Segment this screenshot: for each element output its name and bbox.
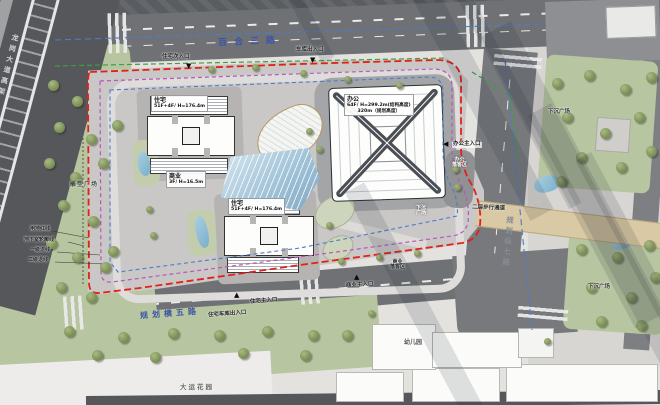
office-label: 办公 64F/ H=299.2m(结构高度) 320m（规划高度） xyxy=(344,94,414,116)
crosswalk xyxy=(63,295,85,330)
legend-basement-outline: 地下室轮廓线 xyxy=(24,238,54,243)
legend-site-boundary: 用地红线 xyxy=(30,227,50,232)
residential-b-slab xyxy=(227,257,299,273)
entrance-arrow-down-icon: ▼ xyxy=(186,63,191,70)
commercial-spec: 3F/ H=16.5m xyxy=(169,180,203,186)
entrance-arrow-up-icon: ▲ xyxy=(234,292,239,299)
sunken-plaza-se-label: 下沉广场 xyxy=(588,285,610,291)
sculpture-plaza-label: 雕塑广场 xyxy=(70,182,98,188)
entrance-arrow-down-icon: ▼ xyxy=(310,57,315,64)
commercial-label: 商业 3F/ H=16.5m xyxy=(166,171,206,188)
crosswalk xyxy=(465,5,488,48)
entrance-arrow-up-icon: ▲ xyxy=(354,274,359,281)
residential-b-tower xyxy=(224,216,314,256)
sunken-plaza-center-line2: 广场 xyxy=(416,211,426,216)
southeast-junction xyxy=(452,248,578,340)
walkway-label: 二层步行通道 xyxy=(472,205,505,212)
residential-b-spec: 51F+4F/ H=176.4m xyxy=(231,207,282,213)
residential-a-spec: 51F+4F/ H=176.4m xyxy=(154,104,205,110)
commercial-dropoff-label: 商业 落客区 xyxy=(390,260,405,270)
office-dropoff-line2: 落客区 xyxy=(452,163,467,168)
kindergarten-building xyxy=(432,332,522,368)
residential-b-label: 住宅 51F+4F/ H=176.4m xyxy=(228,198,285,215)
entrance-arrow-left-icon: ◀ xyxy=(443,141,448,148)
garage-north-label: 车库出入口 xyxy=(296,48,324,54)
office-spec: 64F/ H=299.2m(结构高度) xyxy=(347,103,411,109)
legend-setback-2: 二级退线 xyxy=(28,258,48,263)
kindergarten-label: 幼儿园 xyxy=(404,340,422,346)
office-spec2: 320m（规划高度） xyxy=(347,109,411,115)
kindergarten-building xyxy=(372,324,436,370)
residential-a-tower xyxy=(147,116,235,156)
garden-label: 大运花园 xyxy=(180,384,214,391)
residential-secondary-entrance-label: 住宅次入口 xyxy=(162,55,190,61)
legend-setback-1: 一级退线 xyxy=(30,248,50,253)
residential-a-label: 住宅 51F+4F/ H=176.4m xyxy=(151,95,208,112)
architectural-site-plan: 住宅 51F+4F/ H=176.4m 商业 3F/ H=16.5m 住宅 51… xyxy=(0,0,660,405)
crosswalk xyxy=(107,13,130,54)
office-main-entrance-label: 办公主入口 xyxy=(452,142,482,148)
south-building xyxy=(336,372,404,402)
sunken-plaza-ne-label: 下沉广场 xyxy=(548,110,570,116)
south-building xyxy=(412,368,500,402)
office-dropoff-label: 办公 落客区 xyxy=(452,158,467,168)
south-building xyxy=(506,364,658,402)
northeast-building xyxy=(605,5,656,39)
commercial-dropoff-line2: 落客区 xyxy=(390,265,405,270)
sunken-plaza-center-label: 下沉 广场 xyxy=(416,206,426,216)
